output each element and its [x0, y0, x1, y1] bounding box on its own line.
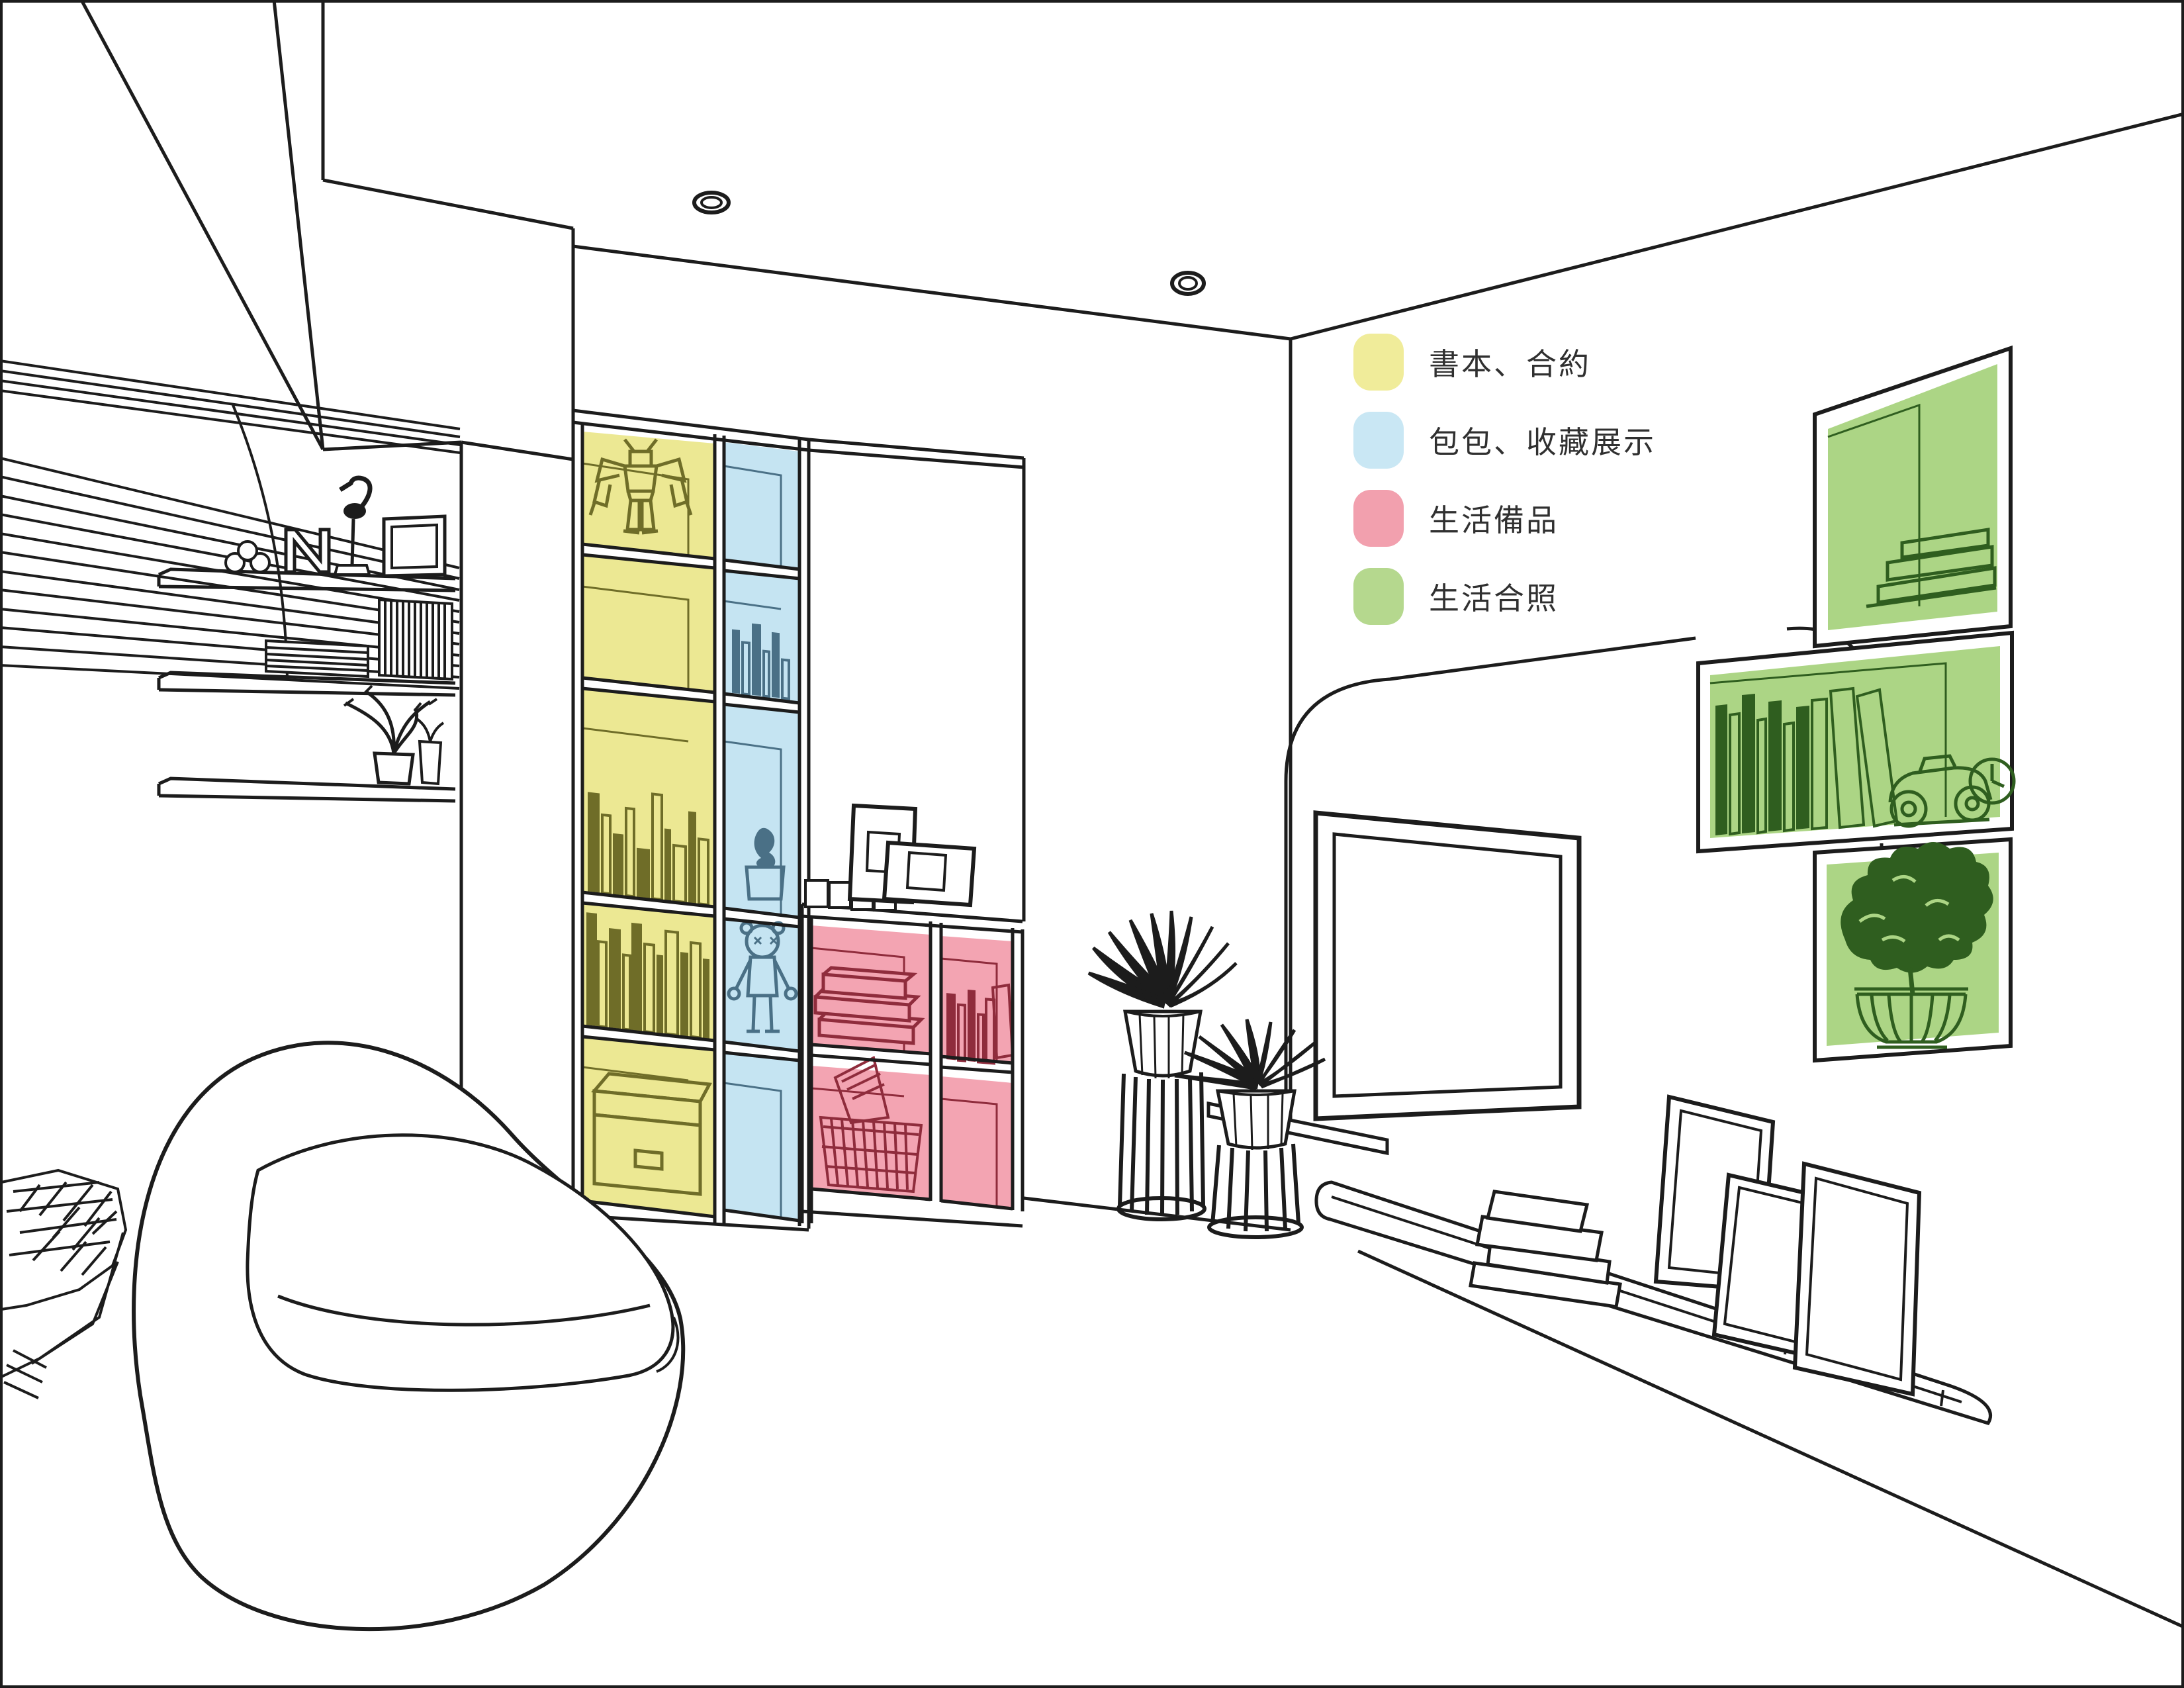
legend-label: 生活備品 [1429, 496, 1559, 540]
tall-bookshelf [573, 410, 809, 1230]
leaning-picture-frames [1656, 1097, 1919, 1394]
green-wall-boxes [1698, 348, 2014, 1060]
interior-design-illustration: 書本、合約 包包、收藏展示 生活備品 生活合照 [0, 0, 2184, 1688]
legend-item-bags: 包包、收藏展示 [1353, 412, 1656, 469]
book-row [946, 988, 994, 1063]
ceiling-downlights-icon [694, 193, 1204, 294]
green-box-top [1815, 348, 2011, 646]
potted-plant-icon [344, 686, 443, 784]
legend-item-photos: 生活合照 [1353, 568, 1656, 625]
legend-item-books: 書本、合約 [1353, 334, 1656, 391]
bird-figurine-icon [335, 478, 370, 575]
legend-swatch-yellow [1353, 334, 1404, 391]
pink-cube-storage [802, 806, 1023, 1226]
legend-swatch-green [1353, 568, 1404, 625]
legend-swatch-blue [1353, 412, 1404, 469]
legend-label: 包包、收藏展示 [1429, 418, 1656, 462]
storage-trunk-icon [594, 1074, 709, 1194]
legend-item-supplies: 生活備品 [1353, 490, 1656, 547]
book-stack [1471, 1192, 1620, 1307]
room-line-drawing [0, 0, 2184, 1688]
legend-swatch-pink [1353, 490, 1404, 547]
television [1316, 813, 1579, 1119]
letter-N-decor [286, 530, 329, 572]
legend: 書本、合約 包包、收藏展示 生活備品 生活合照 [1353, 334, 1656, 646]
green-box-middle [1698, 633, 2014, 851]
legend-label: 生活合照 [1429, 575, 1559, 618]
legend-label: 書本、合約 [1429, 340, 1591, 384]
stacked-boxes [815, 968, 921, 1043]
photo-frame [884, 843, 974, 905]
photo-frame [384, 516, 445, 576]
sketch-cushion [1, 1170, 126, 1398]
green-box-bottom [1815, 839, 2011, 1060]
